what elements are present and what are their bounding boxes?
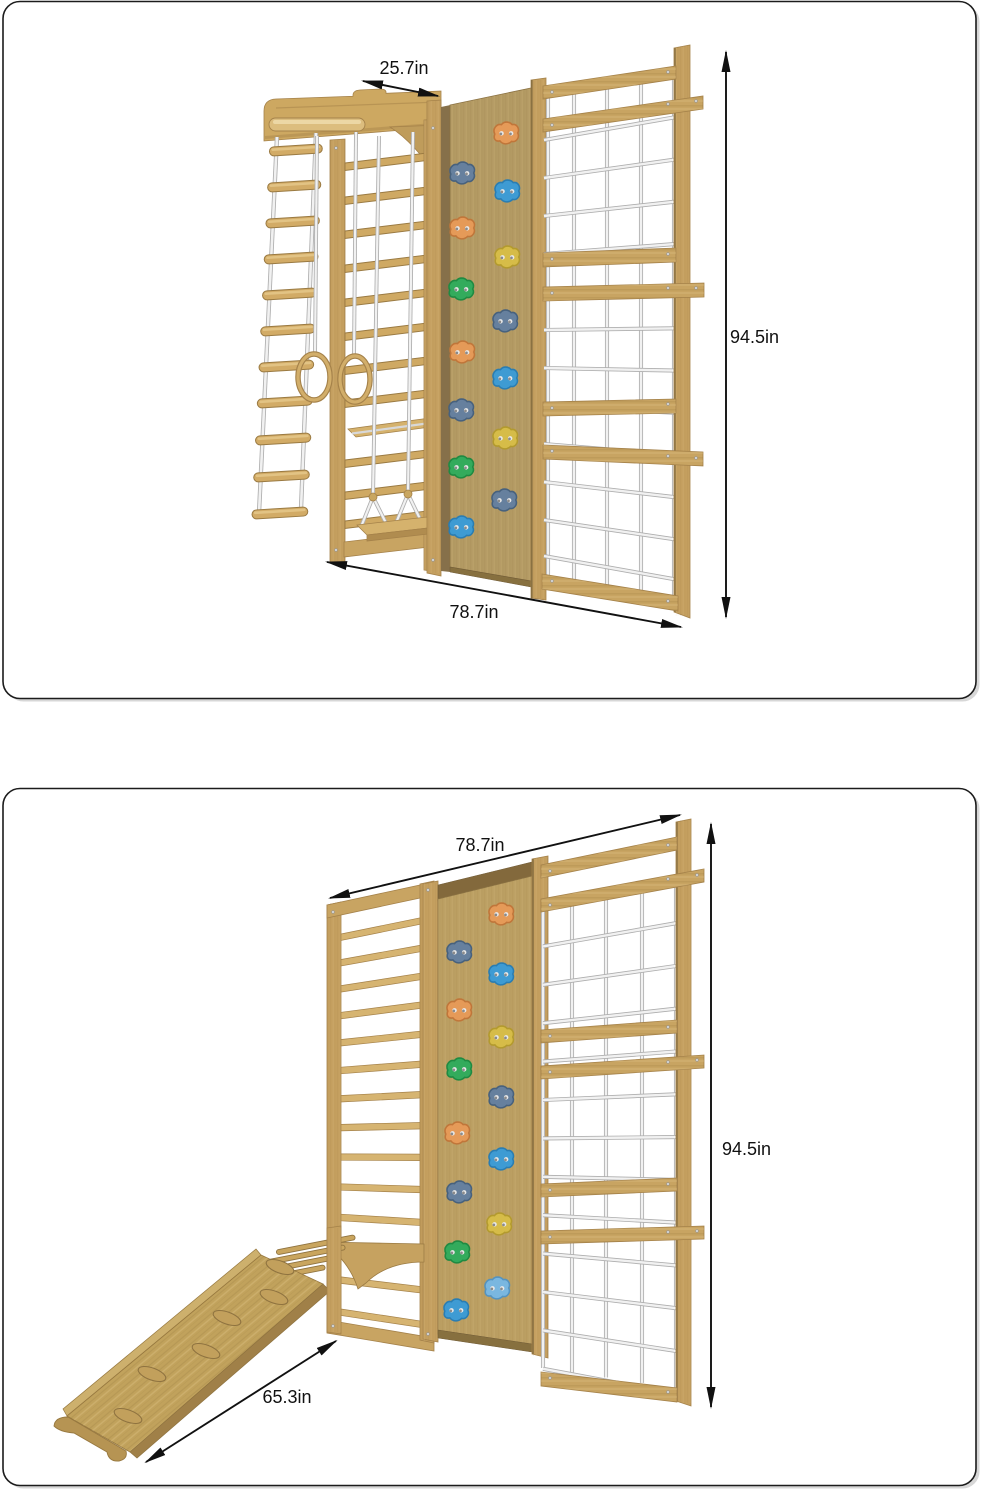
svg-text:94.5in: 94.5in <box>730 327 779 347</box>
svg-text:94.5in: 94.5in <box>722 1139 771 1159</box>
svg-text:65.3in: 65.3in <box>262 1387 311 1407</box>
svg-text:78.7in: 78.7in <box>455 835 504 855</box>
svg-text:78.7in: 78.7in <box>449 602 498 622</box>
svg-text:25.7in: 25.7in <box>379 58 428 78</box>
